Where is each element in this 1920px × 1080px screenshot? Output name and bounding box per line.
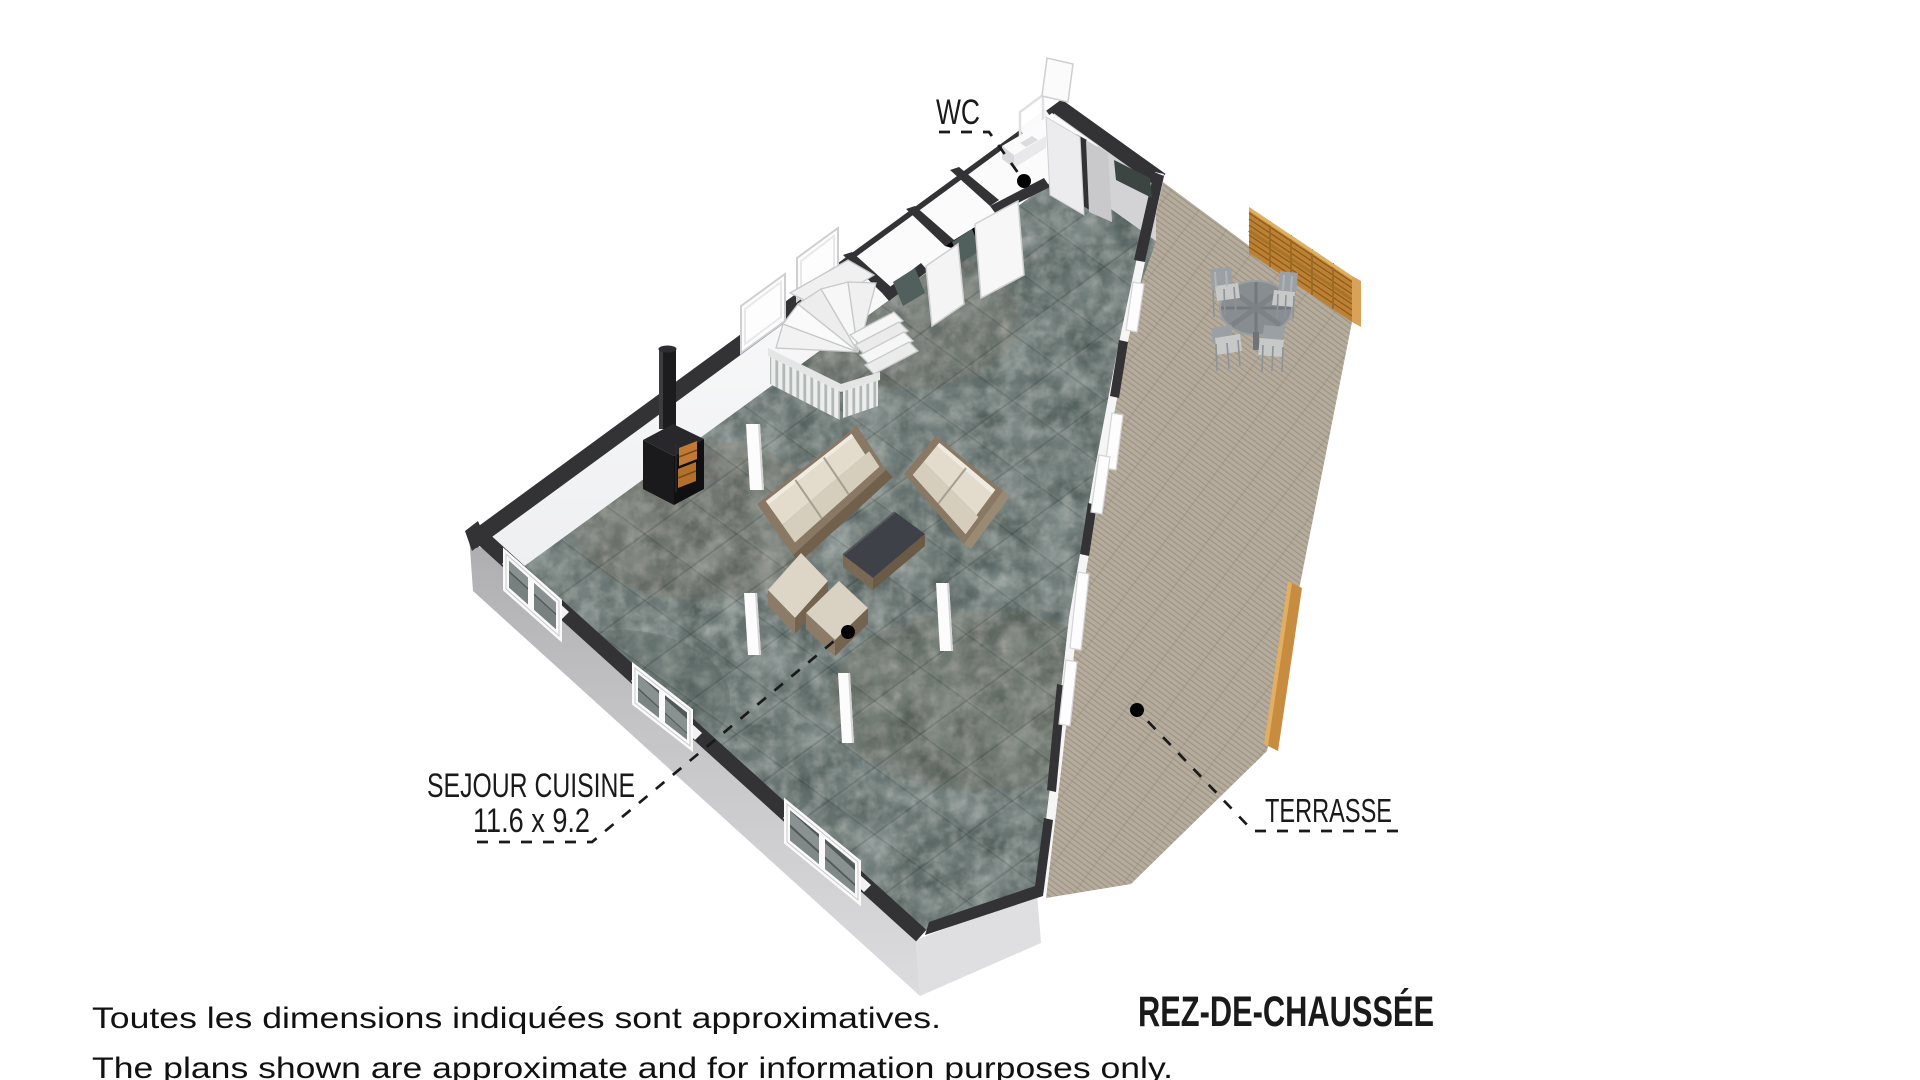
svg-text:The plans shown are approximat: The plans shown are approximate and for … [92, 1052, 1173, 1080]
svg-text:WC: WC [936, 93, 980, 132]
svg-text:TERRASSE: TERRASSE [1265, 792, 1392, 829]
svg-text:11.6 x 9.2: 11.6 x 9.2 [473, 802, 590, 840]
svg-text:REZ-DE-CHAUSSÉE: REZ-DE-CHAUSSÉE [1138, 988, 1434, 1036]
svg-text:Toutes les dimensions indiquée: Toutes les dimensions indiquées sont app… [92, 1002, 941, 1035]
svg-text:SEJOUR CUISINE: SEJOUR CUISINE [427, 767, 635, 805]
